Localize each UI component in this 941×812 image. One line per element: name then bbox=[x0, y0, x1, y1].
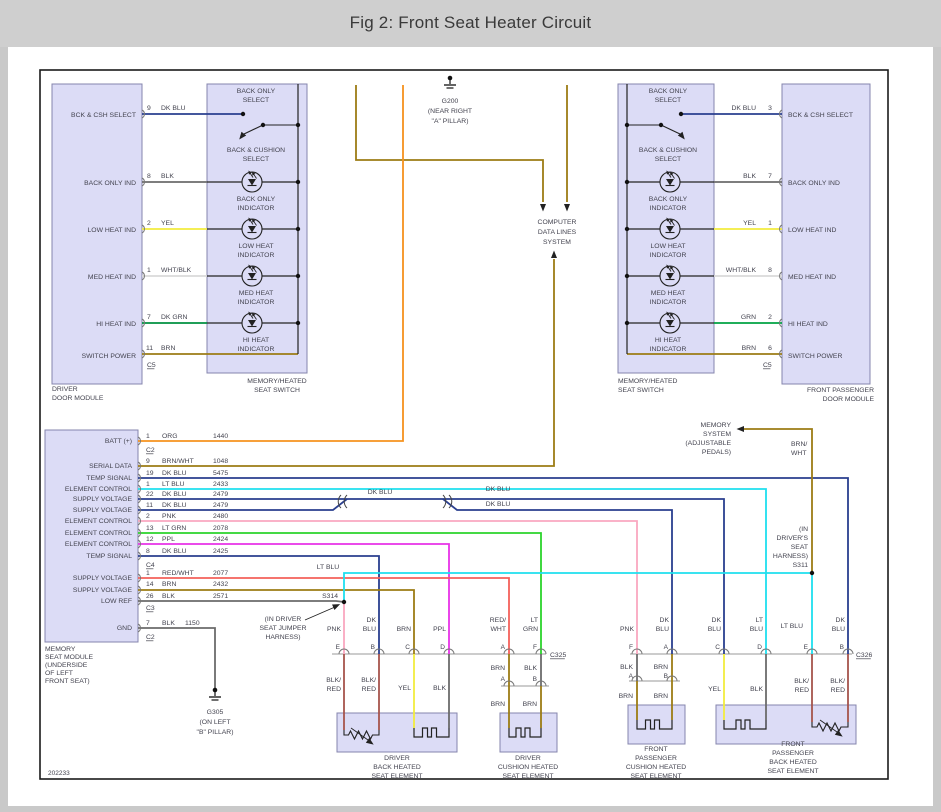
bundle-mark bbox=[443, 495, 446, 508]
label: S311 bbox=[793, 562, 809, 569]
label: LOW REF bbox=[101, 598, 132, 605]
junction-dot bbox=[296, 321, 300, 325]
label: C2 bbox=[146, 447, 155, 454]
label: FRONT SEAT) bbox=[45, 678, 90, 685]
label: BRN bbox=[162, 581, 176, 588]
label: DK BLU bbox=[162, 491, 187, 498]
junction-dot bbox=[810, 571, 814, 575]
junction-dot bbox=[625, 227, 629, 231]
label: C2 bbox=[146, 634, 155, 641]
label: 2479 bbox=[213, 502, 228, 509]
junction-dot bbox=[679, 112, 683, 116]
label: 2433 bbox=[213, 481, 228, 488]
label: INDICATOR bbox=[238, 205, 275, 212]
label: MEMORY bbox=[701, 422, 732, 429]
label: 7 bbox=[146, 620, 150, 627]
label: BLK bbox=[620, 664, 633, 671]
label: ELEMENT CONTROL bbox=[65, 486, 132, 493]
arrowhead-icon bbox=[737, 426, 745, 432]
label: 1048 bbox=[213, 458, 228, 465]
label: DOOR MODULE bbox=[823, 396, 875, 403]
label: 2 bbox=[768, 314, 772, 321]
label: SELECT bbox=[655, 97, 681, 104]
junction-dot bbox=[625, 123, 629, 127]
label: 5475 bbox=[213, 470, 228, 477]
label: MED HEAT bbox=[239, 290, 274, 297]
label: 3 bbox=[768, 105, 772, 112]
label: SEAT ELEMENT bbox=[630, 773, 681, 780]
label: INDICATOR bbox=[650, 252, 687, 259]
label: DK BLU bbox=[368, 489, 393, 496]
label: HI HEAT bbox=[243, 337, 269, 344]
label: SEAT ELEMENT bbox=[371, 773, 422, 780]
label: C bbox=[405, 644, 410, 651]
label: INDICATOR bbox=[650, 205, 687, 212]
label: "A" PILLAR) bbox=[432, 118, 469, 125]
label: DK BLU bbox=[161, 105, 186, 112]
label: MEMORY/HEATED bbox=[618, 378, 678, 385]
label: DK BLU bbox=[162, 502, 187, 509]
label: PNK bbox=[162, 513, 176, 520]
label: 2480 bbox=[213, 513, 228, 520]
label: (IN bbox=[799, 526, 808, 533]
label: F bbox=[533, 644, 537, 651]
label: WHT/BLK bbox=[161, 267, 192, 274]
label: BRN bbox=[742, 345, 756, 352]
label: OF LEFT bbox=[45, 670, 73, 677]
label: RED bbox=[795, 687, 809, 694]
label: 1 bbox=[146, 570, 150, 577]
label: 11 bbox=[146, 502, 153, 509]
label: LT bbox=[756, 617, 763, 624]
label: YEL bbox=[743, 220, 756, 227]
label: BLU bbox=[363, 626, 376, 633]
label: ELEMENT CONTROL bbox=[65, 541, 132, 548]
label: A bbox=[501, 644, 506, 651]
label: SUPPLY VOLTAGE bbox=[73, 575, 133, 582]
label: BACK HEATED bbox=[769, 759, 817, 766]
junction-dot bbox=[659, 123, 663, 127]
label: SUPPLY VOLTAGE bbox=[73, 507, 133, 514]
label: SUPPLY VOLTAGE bbox=[73, 496, 133, 503]
label: PPL bbox=[433, 626, 446, 633]
label: BLU bbox=[750, 626, 763, 633]
label: BLK bbox=[524, 665, 537, 672]
label: 1440 bbox=[213, 433, 228, 440]
label: PNK bbox=[327, 626, 341, 633]
label: DK bbox=[836, 617, 846, 624]
label: 9 bbox=[147, 105, 151, 112]
label: (ADJUSTABLE bbox=[685, 440, 731, 447]
label: BLK bbox=[743, 173, 756, 180]
label: BACK HEATED bbox=[373, 764, 421, 771]
label: HI HEAT IND bbox=[96, 321, 136, 328]
label: 8 bbox=[147, 173, 151, 180]
label: DRIVER'S bbox=[776, 535, 808, 542]
label: BRN/WHT bbox=[162, 458, 194, 465]
label: SWITCH POWER bbox=[82, 353, 136, 360]
label: SELECT bbox=[243, 97, 269, 104]
label: B bbox=[840, 644, 844, 651]
label: BACK ONLY IND bbox=[84, 180, 136, 187]
label: BLK bbox=[162, 593, 175, 600]
label: 11 bbox=[146, 345, 153, 352]
label: 2077 bbox=[213, 570, 228, 577]
wiring-diagram: BCK & CSH SELECTBACK ONLY INDLOW HEAT IN… bbox=[0, 0, 941, 812]
label: DOOR MODULE bbox=[52, 395, 104, 402]
label: INDICATOR bbox=[650, 346, 687, 353]
label: GRN bbox=[523, 626, 538, 633]
label: 2424 bbox=[213, 536, 228, 543]
label: HARNESS) bbox=[265, 634, 300, 641]
label: RED bbox=[327, 686, 341, 693]
label: ELEMENT CONTROL bbox=[65, 518, 132, 525]
label: RED/ bbox=[490, 617, 506, 624]
label: DRIVER bbox=[515, 755, 541, 762]
label: B bbox=[371, 644, 375, 651]
label: E bbox=[336, 644, 341, 651]
label: D bbox=[440, 644, 445, 651]
label: INDICATOR bbox=[650, 299, 687, 306]
label: BRN bbox=[491, 701, 505, 708]
label: DK GRN bbox=[161, 314, 188, 321]
label: LOW HEAT IND bbox=[88, 227, 137, 234]
label: BLK/ bbox=[830, 678, 845, 685]
label: PPL bbox=[162, 536, 175, 543]
junction-dot bbox=[241, 112, 245, 116]
label: ELEMENT CONTROL bbox=[65, 530, 132, 537]
label: BRN/ bbox=[791, 441, 807, 448]
label: A bbox=[629, 673, 634, 680]
label: SEAT ELEMENT bbox=[502, 773, 553, 780]
label: ORG bbox=[162, 433, 177, 440]
label: DK bbox=[660, 617, 670, 624]
label: 22 bbox=[146, 491, 154, 498]
label: C326 bbox=[856, 652, 872, 659]
label: 13 bbox=[146, 525, 154, 532]
label: SUPPLY VOLTAGE bbox=[73, 587, 133, 594]
junction-dot bbox=[261, 123, 265, 127]
label: BLK bbox=[750, 686, 763, 693]
junction-dot bbox=[625, 274, 629, 278]
label: SERIAL DATA bbox=[89, 463, 132, 470]
label: DK BLU bbox=[486, 486, 511, 493]
label: (UNDERSIDE bbox=[45, 662, 88, 669]
label: SELECT bbox=[655, 156, 681, 163]
label: DATA LINES bbox=[538, 229, 577, 236]
label: MEMORY/HEATED bbox=[247, 378, 307, 385]
label: 202233 bbox=[48, 770, 70, 777]
label: GND bbox=[117, 625, 132, 632]
driver-door-module-box bbox=[52, 84, 142, 384]
label: CUSHION HEATED bbox=[498, 764, 558, 771]
label: BACK ONLY bbox=[237, 88, 276, 95]
label: 1150 bbox=[185, 620, 200, 627]
label: C325 bbox=[550, 652, 566, 659]
label: S314 bbox=[322, 593, 338, 600]
label: D bbox=[757, 644, 762, 651]
label: 7 bbox=[147, 314, 151, 321]
label: SEAT ELEMENT bbox=[767, 768, 818, 775]
label: 2571 bbox=[213, 593, 228, 600]
label: (NEAR RIGHT bbox=[428, 108, 472, 115]
passenger-back-element-box bbox=[716, 705, 856, 744]
label: 2078 bbox=[213, 525, 228, 532]
bundle-mark bbox=[344, 495, 347, 508]
label: BLK/ bbox=[361, 677, 376, 684]
label: WHT/BLK bbox=[726, 267, 757, 274]
page: Fig 2: Front Seat Heater Circuit BCK & C… bbox=[0, 0, 941, 812]
label: 12 bbox=[146, 536, 154, 543]
label: LT BLU bbox=[781, 623, 804, 630]
label: 2432 bbox=[213, 581, 228, 588]
label: SYSTEM bbox=[543, 239, 571, 246]
label: SEAT SWITCH bbox=[618, 387, 664, 394]
label: CUSHION HEATED bbox=[626, 764, 686, 771]
label: BACK ONLY bbox=[237, 196, 276, 203]
label: BRN bbox=[491, 665, 505, 672]
label: 1 bbox=[147, 267, 151, 274]
arrowhead-icon bbox=[551, 251, 557, 259]
label: INDICATOR bbox=[238, 252, 275, 259]
label: BACK & CUSHION bbox=[227, 147, 285, 154]
junction-dot bbox=[296, 227, 300, 231]
label: YEL bbox=[708, 686, 721, 693]
label: E bbox=[804, 644, 809, 651]
label: 8 bbox=[146, 548, 150, 555]
label: 6 bbox=[768, 345, 772, 352]
label: 2425 bbox=[213, 548, 228, 555]
label: 1 bbox=[768, 220, 772, 227]
label: PASSENGER bbox=[772, 750, 814, 757]
label: 2 bbox=[147, 220, 151, 227]
label: TEMP SIGNAL bbox=[86, 475, 132, 482]
junction-dot bbox=[296, 274, 300, 278]
label: 8 bbox=[768, 267, 772, 274]
label: 1 bbox=[146, 481, 150, 488]
label: BLU bbox=[832, 626, 845, 633]
label: GRN bbox=[741, 314, 756, 321]
label: WHT bbox=[491, 626, 506, 633]
label: 1 bbox=[146, 433, 150, 440]
label: C bbox=[715, 644, 720, 651]
label: TEMP SIGNAL bbox=[86, 553, 132, 560]
label: SELECT bbox=[243, 156, 269, 163]
driver-back-element-box bbox=[337, 713, 457, 752]
label: BLK/ bbox=[326, 677, 341, 684]
label: B bbox=[664, 673, 668, 680]
label: SYSTEM bbox=[703, 431, 731, 438]
wire-blk-2571-lowref bbox=[138, 601, 344, 602]
label: BLK bbox=[161, 173, 174, 180]
label: C5 bbox=[763, 362, 772, 369]
label: INDICATOR bbox=[238, 299, 275, 306]
label: C3 bbox=[146, 605, 155, 612]
label: BLU bbox=[708, 626, 721, 633]
label: G305 bbox=[207, 709, 224, 716]
label: C4 bbox=[146, 562, 155, 569]
label: DK BLU bbox=[162, 548, 187, 555]
label: PASSENGER bbox=[635, 755, 677, 762]
label: RED/WHT bbox=[162, 570, 194, 577]
passenger-door-module-box bbox=[782, 84, 870, 384]
label: YEL bbox=[398, 685, 411, 692]
arrowhead-icon bbox=[540, 204, 546, 212]
label: G200 bbox=[442, 98, 459, 105]
label: BRN bbox=[654, 664, 668, 671]
label: SWITCH POWER bbox=[788, 353, 842, 360]
label: LT BLU bbox=[317, 564, 340, 571]
label: (ON LEFT bbox=[200, 719, 231, 726]
label: BACK ONLY bbox=[649, 88, 688, 95]
label: 2479 bbox=[213, 491, 228, 498]
label: LT bbox=[531, 617, 538, 624]
label: F bbox=[629, 644, 633, 651]
label: LOW HEAT bbox=[239, 243, 274, 250]
label: DK bbox=[367, 617, 377, 624]
label: BRN bbox=[397, 626, 411, 633]
label: BLK bbox=[433, 685, 446, 692]
label: A bbox=[501, 676, 506, 683]
label: FRONT PASSENGER bbox=[807, 387, 874, 394]
wire-brnwht-1048-serialdata bbox=[138, 259, 554, 466]
label: YEL bbox=[161, 220, 174, 227]
label: PEDALS) bbox=[702, 449, 731, 456]
label: BRN bbox=[161, 345, 175, 352]
s314-callout-line bbox=[305, 607, 335, 620]
label: LT GRN bbox=[162, 525, 186, 532]
label: 14 bbox=[146, 581, 154, 588]
arrowhead-icon bbox=[564, 204, 570, 212]
label: HARNESS) bbox=[773, 553, 808, 560]
label: HI HEAT IND bbox=[788, 321, 828, 328]
label: SEAT SWITCH bbox=[254, 387, 300, 394]
label: BACK & CUSHION bbox=[639, 147, 697, 154]
junction-dot bbox=[342, 600, 346, 604]
label: 2 bbox=[146, 513, 150, 520]
label: LOW HEAT bbox=[651, 243, 686, 250]
label: FRONT bbox=[781, 741, 804, 748]
label: LT BLU bbox=[162, 481, 185, 488]
label: DK bbox=[712, 617, 722, 624]
label: BRN bbox=[523, 701, 537, 708]
wire-ltgrn-2078-elementcontrol bbox=[138, 533, 541, 654]
label: BLU bbox=[656, 626, 669, 633]
label: BCK & CSH SELECT bbox=[788, 112, 853, 119]
label: MED HEAT IND bbox=[788, 274, 836, 281]
label: SEAT bbox=[791, 544, 808, 551]
label: BACK ONLY IND bbox=[788, 180, 840, 187]
label: SEAT MODULE bbox=[45, 654, 94, 661]
label: DK BLU bbox=[486, 501, 511, 508]
label: MEMORY bbox=[45, 646, 76, 653]
label: BLK/ bbox=[794, 678, 809, 685]
label: BACK ONLY bbox=[649, 196, 688, 203]
junction-dot bbox=[625, 321, 629, 325]
label: FRONT bbox=[644, 746, 667, 753]
label: HI HEAT bbox=[655, 337, 681, 344]
label: A bbox=[664, 644, 669, 651]
label: BRN bbox=[654, 693, 668, 700]
label: BLK bbox=[162, 620, 175, 627]
label: SEAT JUMPER bbox=[260, 625, 307, 632]
label: LOW HEAT IND bbox=[788, 227, 837, 234]
label: BATT (+) bbox=[105, 438, 132, 445]
arrowhead-icon bbox=[332, 601, 341, 610]
label: MED HEAT bbox=[651, 290, 686, 297]
label: DRIVER bbox=[384, 755, 410, 762]
label: 26 bbox=[146, 593, 154, 600]
label: RED bbox=[831, 687, 845, 694]
label: C5 bbox=[147, 362, 156, 369]
label: "B" PILLAR) bbox=[197, 729, 234, 736]
label: BCK & CSH SELECT bbox=[71, 112, 136, 119]
label: COMPUTER bbox=[538, 219, 577, 226]
label: 7 bbox=[768, 173, 772, 180]
junction-dot bbox=[296, 180, 300, 184]
label: WHT bbox=[791, 450, 806, 457]
label: 9 bbox=[146, 458, 150, 465]
label: PNK bbox=[620, 626, 634, 633]
label: MED HEAT IND bbox=[88, 274, 136, 281]
label: (IN DRIVER bbox=[265, 616, 302, 623]
junction-dot bbox=[296, 123, 300, 127]
label: BRN bbox=[619, 693, 633, 700]
label: DRIVER bbox=[52, 386, 78, 393]
label: DK BLU bbox=[731, 105, 756, 112]
label: DK BLU bbox=[162, 470, 187, 477]
label: B bbox=[533, 676, 537, 683]
label: INDICATOR bbox=[238, 346, 275, 353]
label: 19 bbox=[146, 470, 154, 477]
label: RED bbox=[362, 686, 376, 693]
junction-dot bbox=[625, 180, 629, 184]
